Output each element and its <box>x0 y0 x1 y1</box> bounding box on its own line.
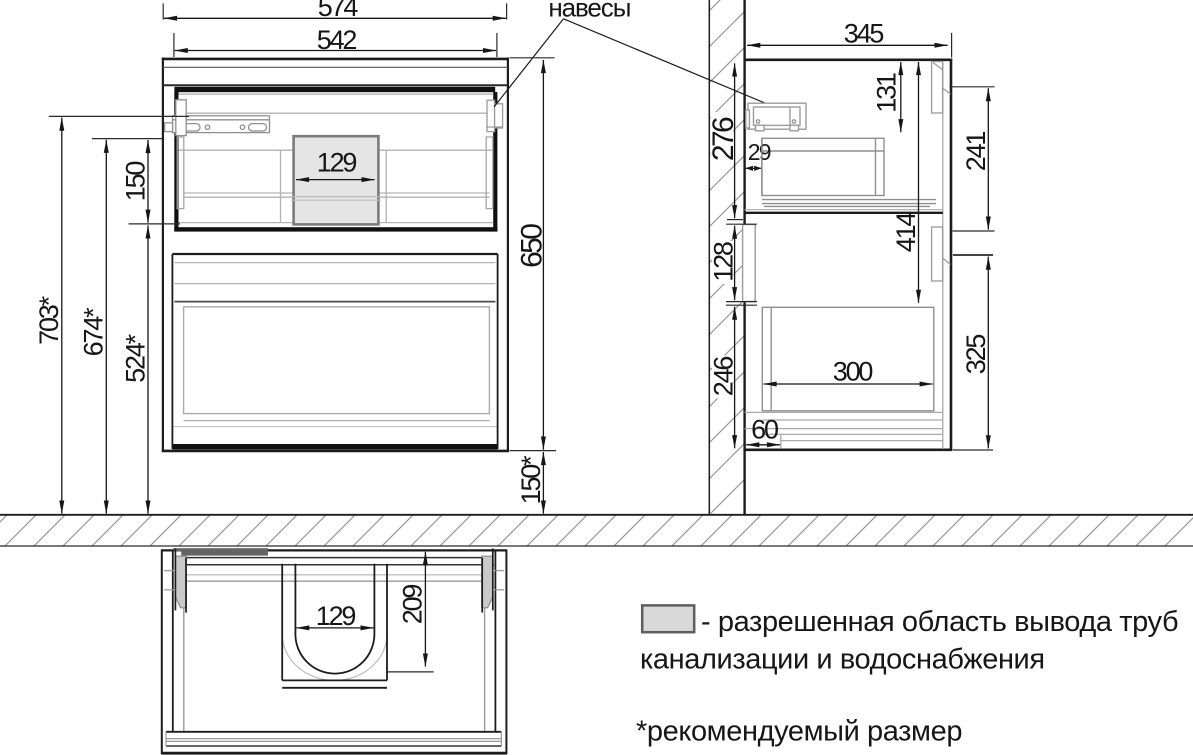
svg-text:канализации и водоснабжения: канализации и водоснабжения <box>640 644 1045 676</box>
svg-text:128: 128 <box>709 242 739 282</box>
svg-text:650: 650 <box>515 224 548 268</box>
svg-text:300: 300 <box>833 357 873 387</box>
svg-text:- разрешенная область вывода т: - разрешенная область вывода труб <box>701 606 1178 638</box>
svg-text:542: 542 <box>317 25 357 55</box>
svg-text:*рекомендуемый размер: *рекомендуемый размер <box>636 716 962 748</box>
svg-text:246: 246 <box>709 357 739 397</box>
svg-text:29: 29 <box>748 139 771 165</box>
svg-text:150*: 150* <box>516 455 546 504</box>
svg-text:131: 131 <box>871 73 901 113</box>
svg-text:60: 60 <box>751 415 778 445</box>
svg-text:241: 241 <box>961 132 991 172</box>
svg-text:674*: 674* <box>79 307 109 356</box>
svg-text:150: 150 <box>120 162 150 202</box>
svg-text:414: 414 <box>891 212 921 253</box>
svg-text:703*: 703* <box>34 295 64 344</box>
svg-text:129: 129 <box>316 601 356 631</box>
svg-text:129: 129 <box>317 148 357 178</box>
svg-text:524*: 524* <box>120 333 150 382</box>
svg-text:325: 325 <box>961 335 991 375</box>
svg-text:276: 276 <box>707 117 740 161</box>
svg-text:навесы: навесы <box>548 0 630 23</box>
svg-text:574: 574 <box>318 0 359 22</box>
svg-text:209: 209 <box>398 585 428 625</box>
svg-text:345: 345 <box>844 18 884 48</box>
